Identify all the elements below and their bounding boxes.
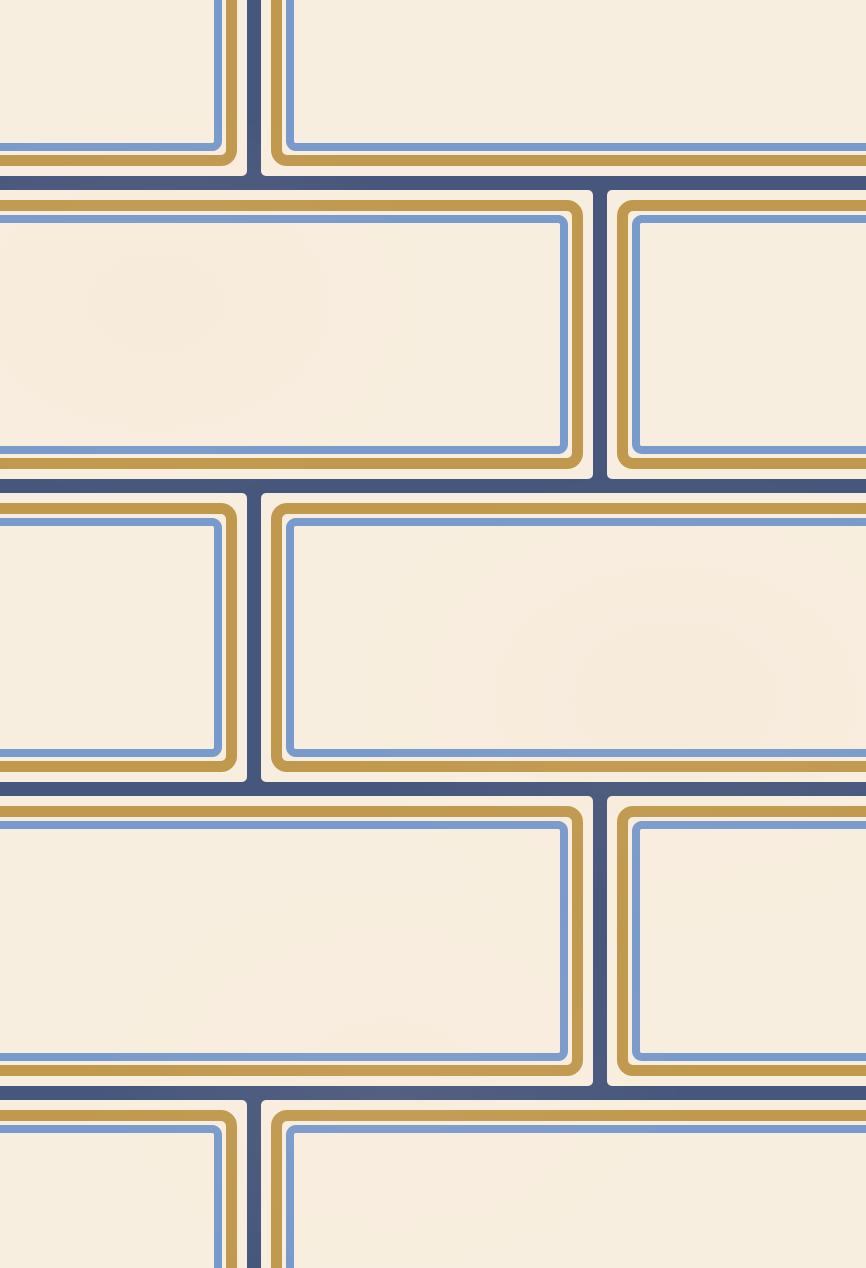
tile-brick-r3-c1	[0, 493, 247, 782]
wallpaper-pattern	[0, 0, 866, 1268]
tile-brick-r5-c1	[0, 1100, 247, 1268]
tile-brick-r4-c1	[0, 796, 593, 1086]
tile-brick-r3-c2	[261, 493, 866, 782]
tile-brick-r1-c2	[261, 0, 866, 176]
blue-pinstripe-frame	[0, 0, 222, 151]
blue-pinstripe-frame	[632, 821, 866, 1061]
tile-brick-r4-c2	[607, 796, 866, 1086]
blue-pinstripe-frame	[0, 821, 568, 1061]
blue-pinstripe-frame	[632, 215, 866, 454]
blue-pinstripe-frame	[0, 518, 222, 757]
blue-pinstripe-frame	[286, 518, 866, 757]
blue-pinstripe-frame	[0, 1125, 222, 1268]
tile-brick-r2-c1	[0, 190, 593, 479]
tile-brick-r1-c1	[0, 0, 247, 176]
tile-brick-r5-c2	[261, 1100, 866, 1268]
blue-pinstripe-frame	[286, 0, 866, 151]
blue-pinstripe-frame	[0, 215, 568, 454]
tile-brick-r2-c2	[607, 190, 866, 479]
blue-pinstripe-frame	[286, 1125, 866, 1268]
